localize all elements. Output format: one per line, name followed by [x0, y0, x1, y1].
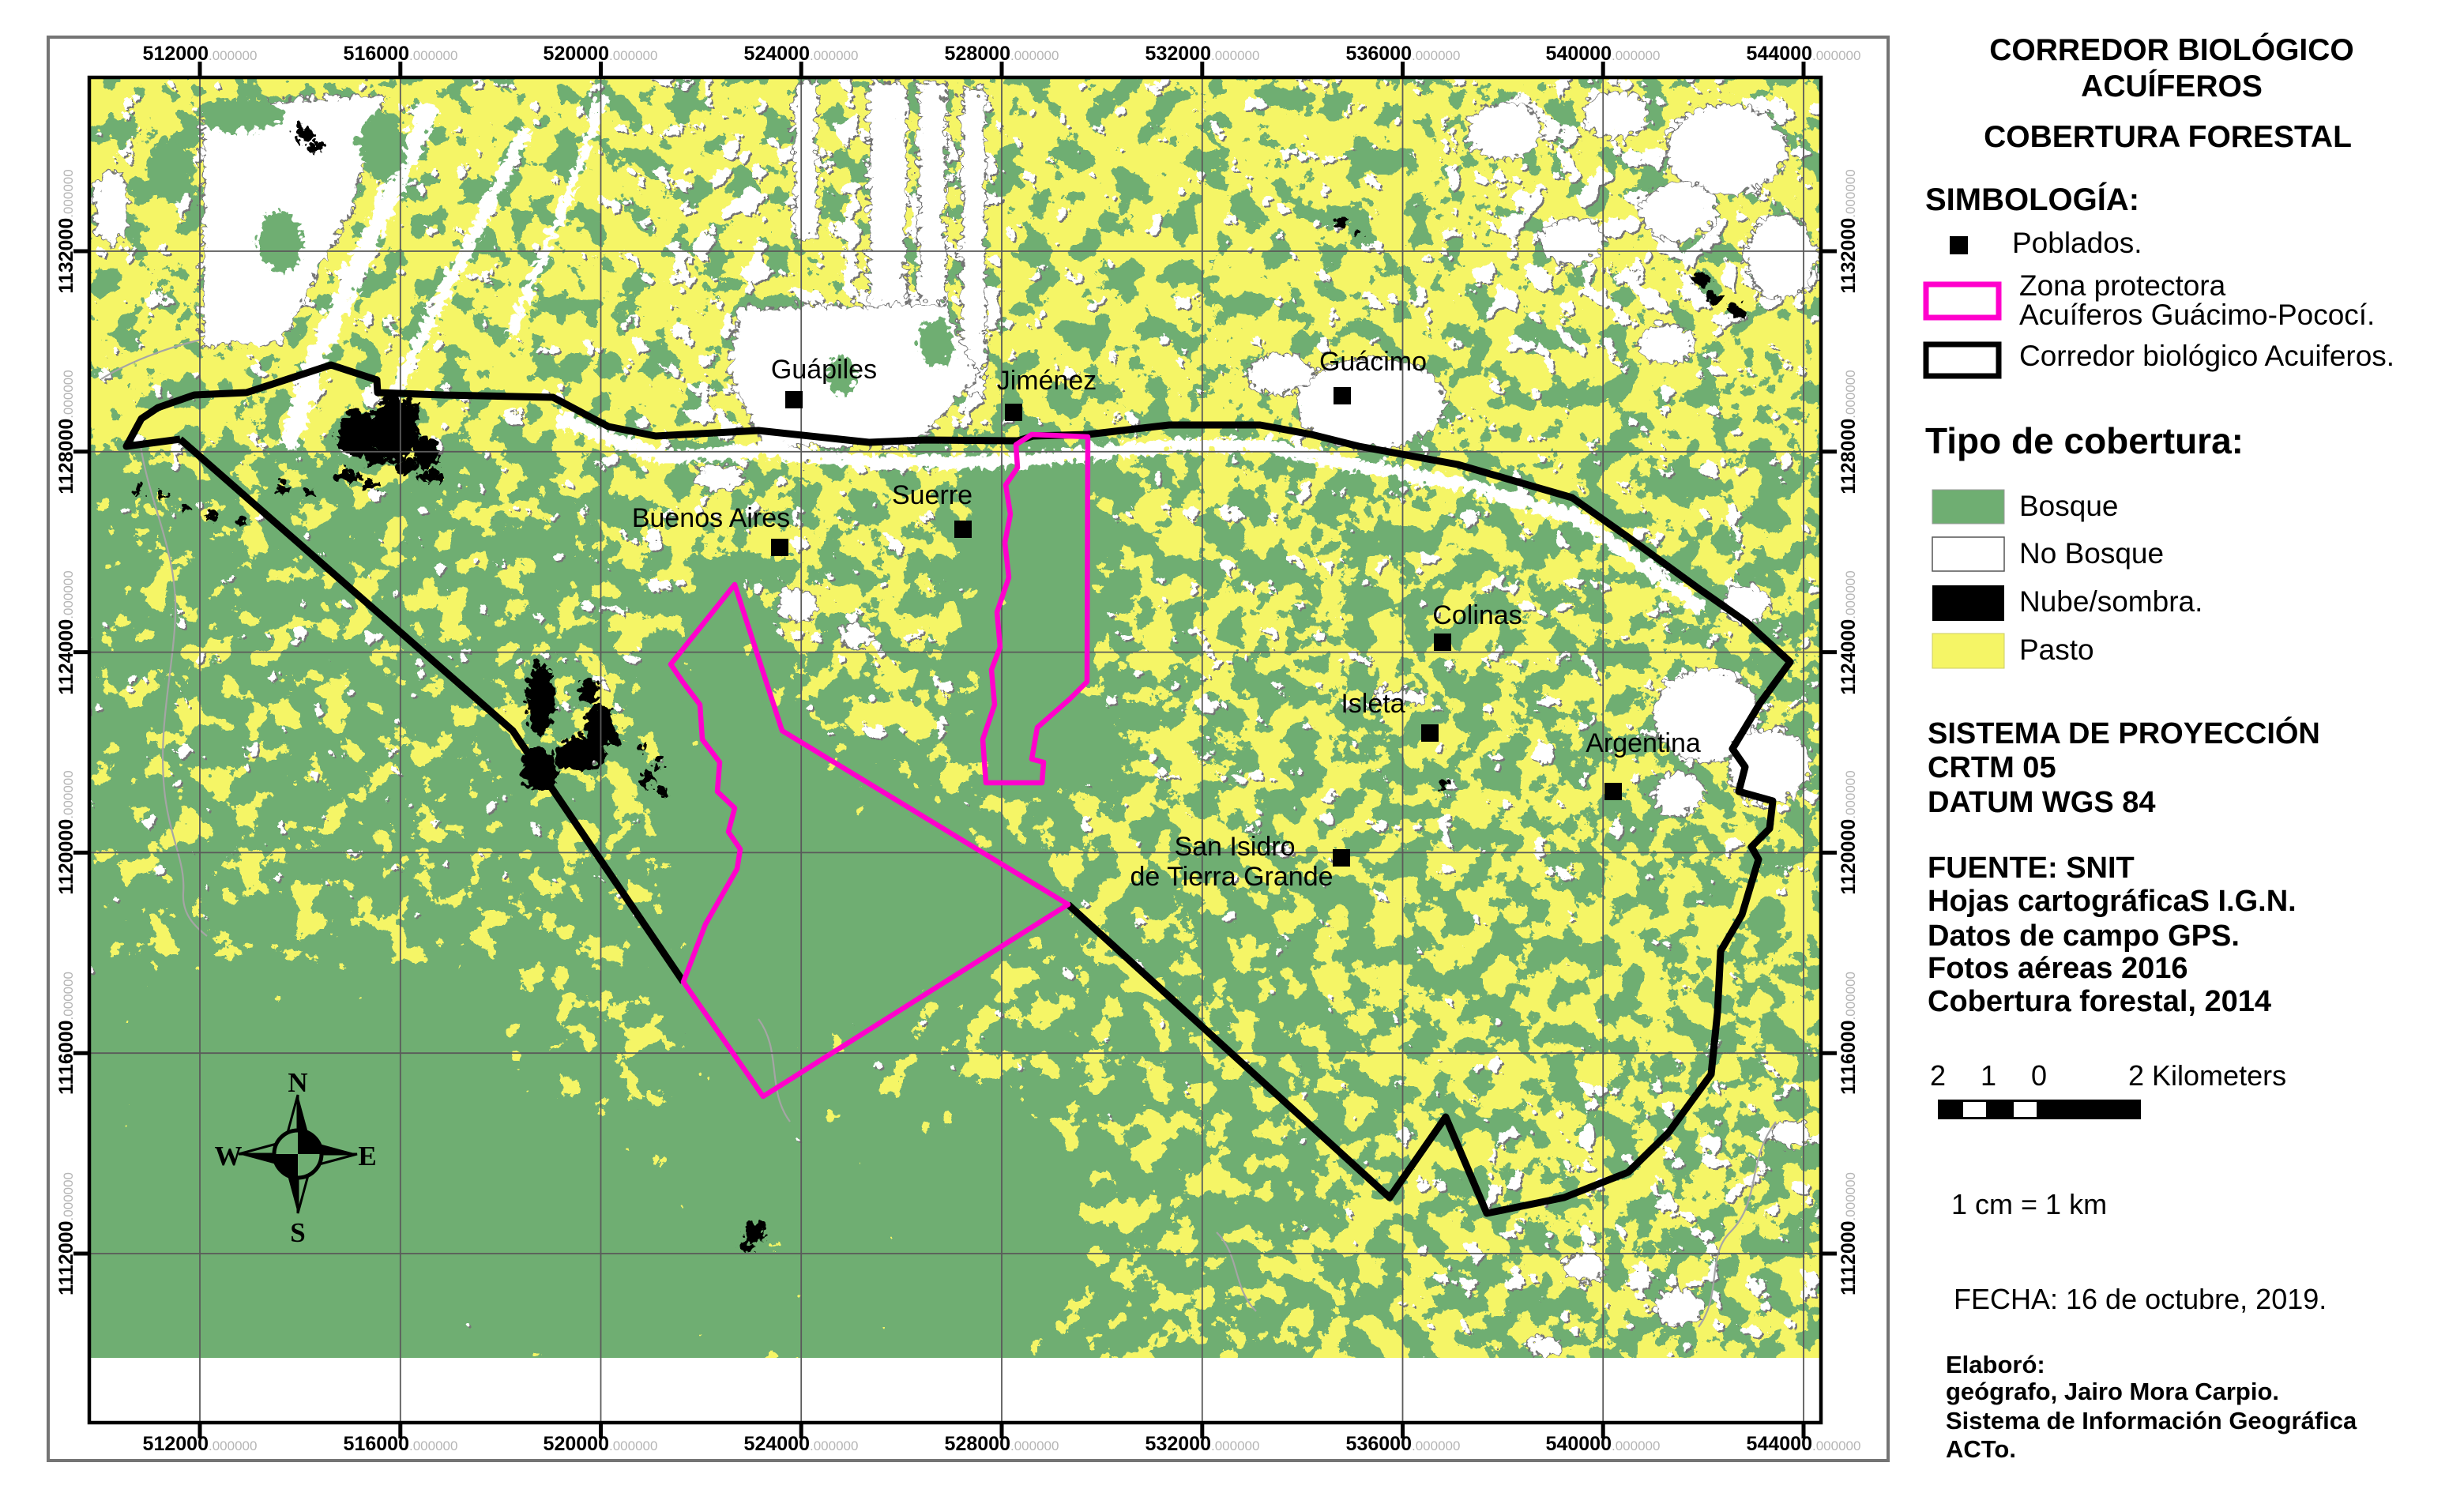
svg-text:CORREDOR BIOLÓGICO: CORREDOR BIOLÓGICO — [1989, 32, 2354, 67]
svg-text:San Isidro: San Isidro — [1174, 832, 1295, 862]
svg-text:Corredor biológico Acuiferos.: Corredor biológico Acuiferos. — [2019, 340, 2394, 372]
svg-text:Zona protectora: Zona protectora — [2019, 269, 2226, 302]
svg-text:0: 0 — [2031, 1059, 2047, 1092]
svg-text:ACTo.: ACTo. — [1946, 1435, 2016, 1463]
svg-text:W: W — [215, 1141, 243, 1171]
svg-text:Elaboró:: Elaboró: — [1946, 1351, 2045, 1378]
svg-text:S: S — [290, 1217, 305, 1248]
svg-text:Poblados.: Poblados. — [2012, 227, 2142, 259]
svg-text:Nube/sombra.: Nube/sombra. — [2019, 585, 2203, 618]
svg-text:Hojas cartográficaS I.G.N.: Hojas cartográficaS I.G.N. — [1928, 885, 2297, 918]
svg-text:Tipo de cobertura:: Tipo de cobertura: — [1925, 420, 2244, 461]
svg-text:COBERTURA FORESTAL: COBERTURA FORESTAL — [1984, 120, 2352, 154]
svg-text:1: 1 — [1981, 1059, 1996, 1092]
svg-text:Sistema de Información Geográf: Sistema de Información Geográfica — [1946, 1407, 2357, 1434]
svg-text:Pasto: Pasto — [2019, 634, 2094, 666]
svg-text:Cobertura forestal, 2014: Cobertura forestal, 2014 — [1928, 985, 2271, 1018]
svg-text:E: E — [358, 1141, 376, 1171]
svg-text:FUENTE: SNIT: FUENTE: SNIT — [1928, 852, 2135, 885]
svg-text:N: N — [288, 1067, 307, 1098]
svg-text:Guácimo: Guácimo — [1319, 347, 1427, 377]
svg-text:No Bosque: No Bosque — [2019, 537, 2164, 570]
svg-text:2: 2 — [1930, 1059, 1946, 1092]
svg-text:Argentina: Argentina — [1586, 728, 1701, 758]
svg-text:CRTM 05: CRTM 05 — [1928, 751, 2056, 784]
svg-text:Suerre: Suerre — [892, 480, 972, 510]
svg-text:2 Kilometers: 2 Kilometers — [2128, 1059, 2286, 1092]
svg-text:Colinas: Colinas — [1432, 600, 1522, 630]
svg-text:Jiménez: Jiménez — [997, 366, 1097, 396]
svg-text:Acuíferos Guácimo-Pococí.: Acuíferos Guácimo-Pococí. — [2019, 299, 2375, 331]
svg-text:geógrafo, Jairo Mora Carpio.: geógrafo, Jairo Mora Carpio. — [1946, 1378, 2279, 1405]
svg-text:SIMBOLOGÍA:: SIMBOLOGÍA: — [1925, 182, 2139, 217]
svg-text:1 cm = 1 km: 1 cm = 1 km — [1951, 1188, 2107, 1220]
svg-text:Datos de campo GPS.: Datos de campo GPS. — [1928, 919, 2240, 953]
svg-text:de Tierra Grande: de Tierra Grande — [1130, 862, 1333, 892]
svg-text:FECHA: 16 de octubre, 2019.: FECHA: 16 de octubre, 2019. — [1954, 1283, 2327, 1315]
svg-text:Fotos aéreas 2016: Fotos aéreas 2016 — [1928, 952, 2188, 985]
svg-text:SISTEMA DE PROYECCIÓN: SISTEMA DE PROYECCIÓN — [1928, 716, 2320, 750]
svg-text:Buenos Aires: Buenos Aires — [632, 503, 790, 533]
svg-text:Guápiles: Guápiles — [771, 355, 877, 385]
svg-text:Isleta: Isleta — [1341, 689, 1405, 719]
svg-text:DATUM WGS 84: DATUM WGS 84 — [1928, 786, 2156, 819]
svg-text:Bosque: Bosque — [2019, 490, 2119, 522]
svg-text:ACUÍFEROS: ACUÍFEROS — [2081, 69, 2263, 103]
